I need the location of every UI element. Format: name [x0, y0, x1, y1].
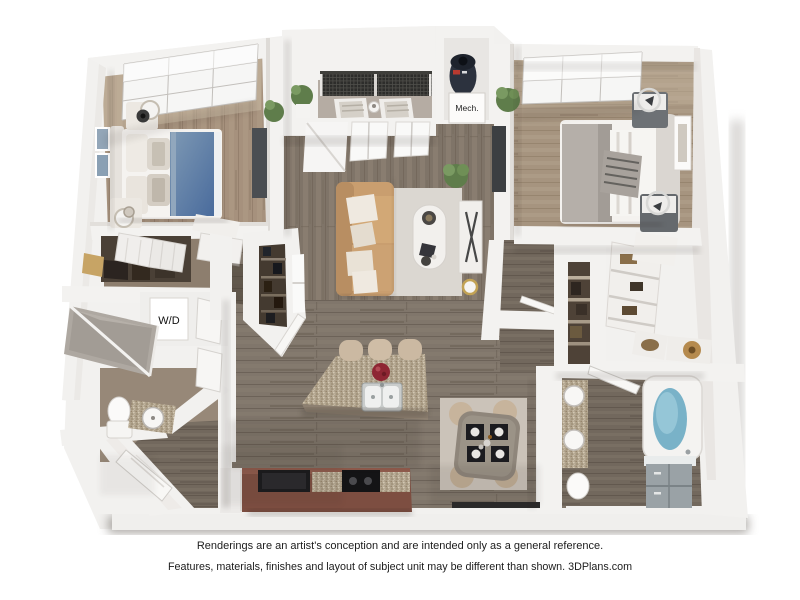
- svg-text:Mech.: Mech.: [455, 103, 478, 113]
- svg-text:Features, materials, finishes: Features, materials, finishes and layout…: [168, 561, 632, 573]
- svg-text:W/D: W/D: [158, 315, 179, 327]
- svg-text:Renderings are an artist's con: Renderings are an artist's conception an…: [197, 540, 603, 552]
